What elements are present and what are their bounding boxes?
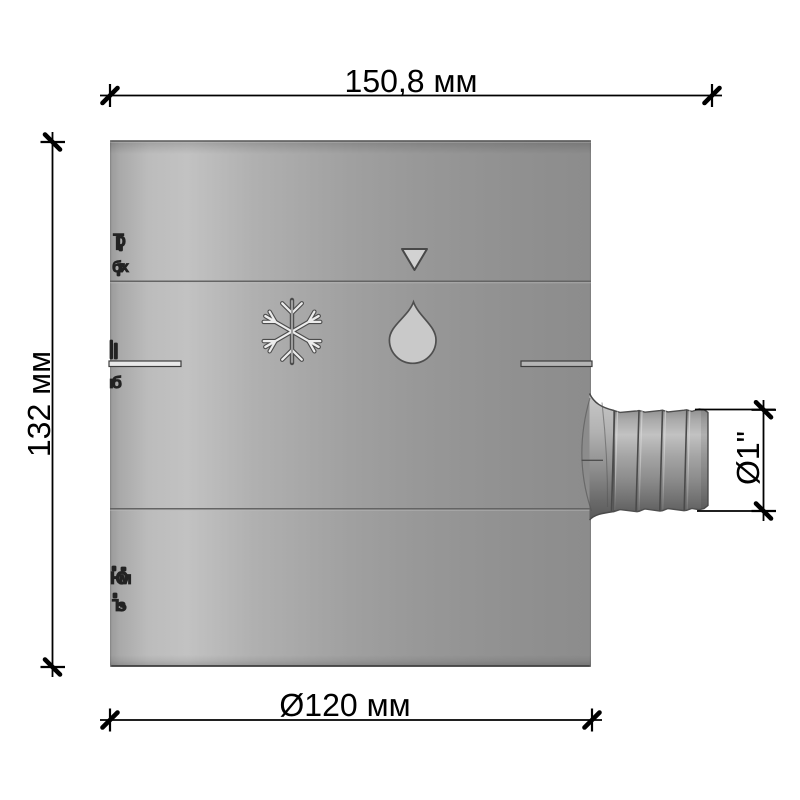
svg-text:бтх: бтх: [112, 259, 129, 276]
svg-text:гб: гб: [109, 373, 122, 392]
svg-text:Ø120 мм: Ø120 мм: [279, 687, 410, 723]
svg-text:150,8 мм: 150,8 мм: [345, 63, 478, 99]
svg-text:Ъз: Ъз: [112, 596, 127, 615]
svg-text:132 мм: 132 мм: [21, 351, 57, 457]
svg-text:Ø1": Ø1": [730, 431, 766, 485]
